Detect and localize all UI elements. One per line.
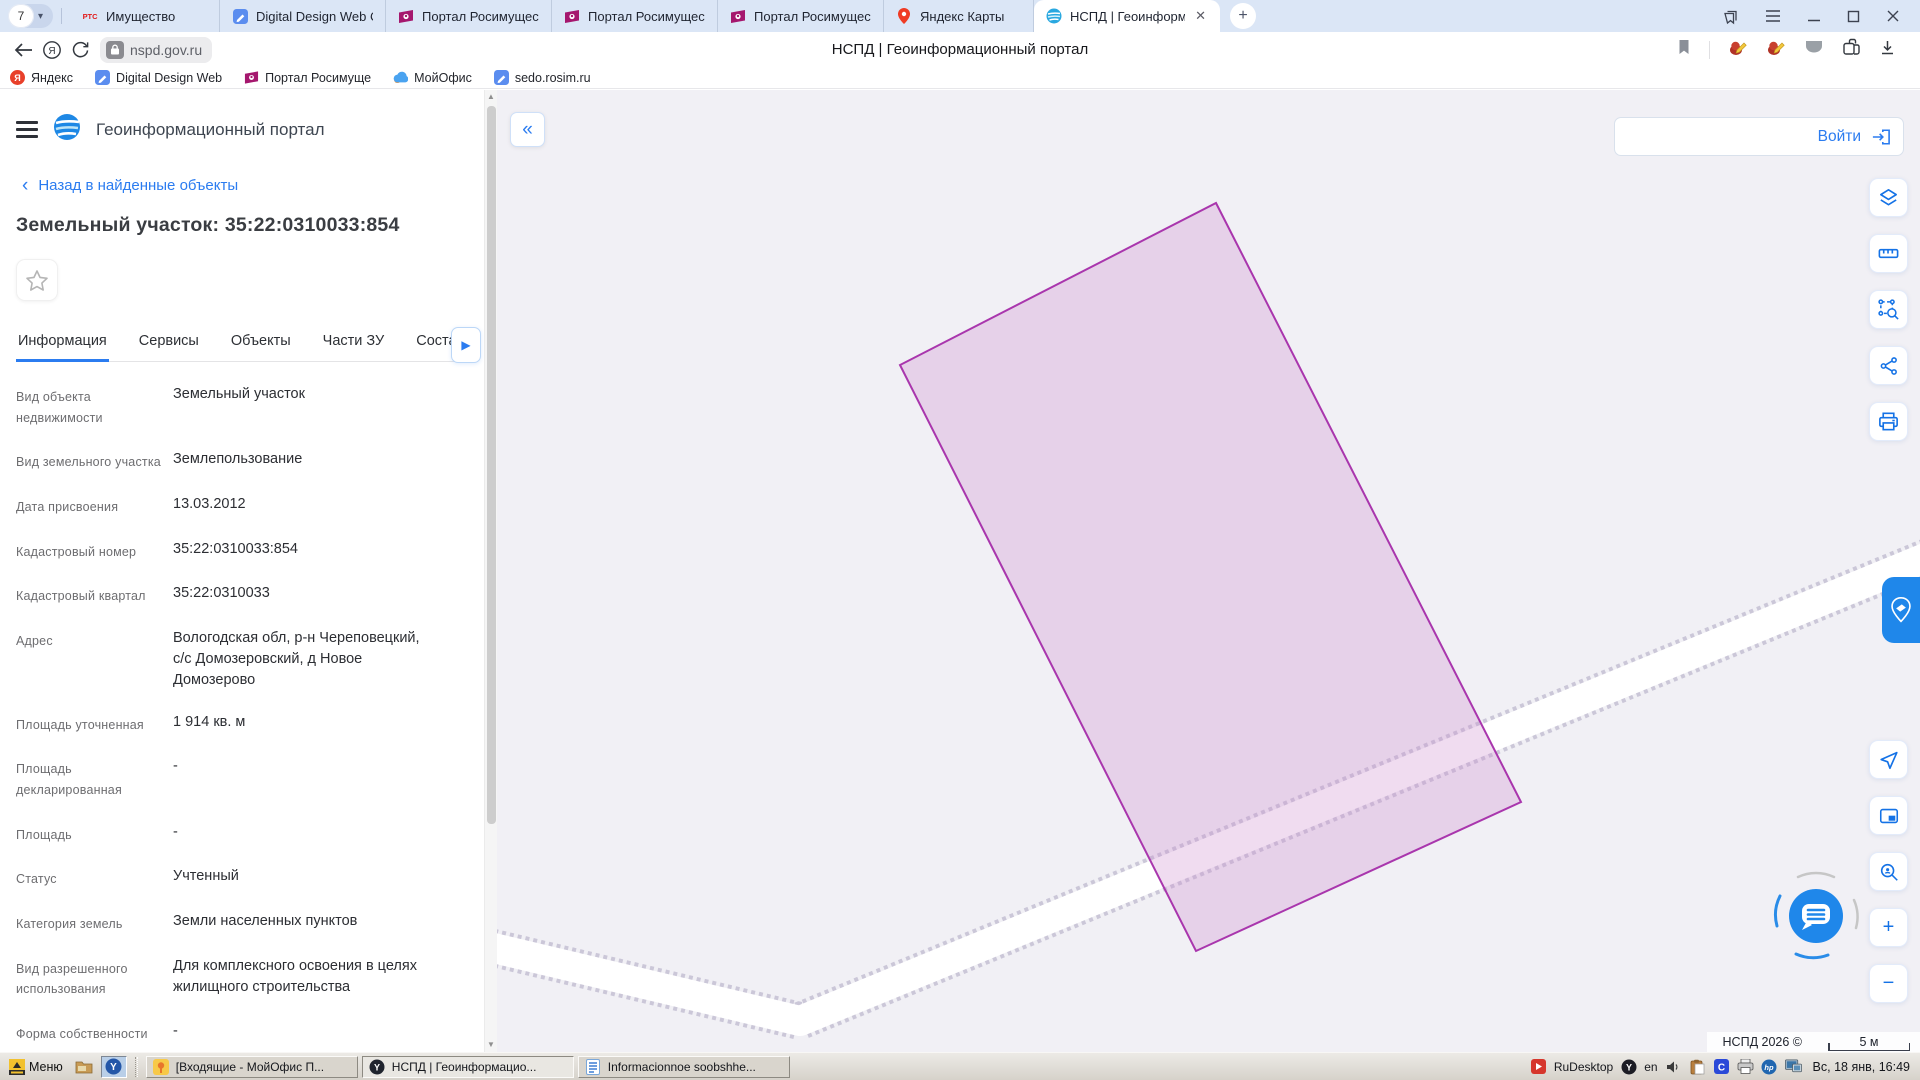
field-value: - (173, 822, 431, 846)
object-info-panel: Геоинформационный портал ‹ Назад в найде… (0, 90, 497, 1052)
bookmark-favicon (244, 70, 259, 85)
map-attribution: НСПД 2026 © 5 м (1707, 1032, 1920, 1052)
bookmarks-bar: Я Яндекс Digital Design Web Портал Росим… (0, 67, 1920, 89)
field-value: Для комплексного освоения в целях жилищн… (173, 956, 431, 1000)
svg-text:Я: Я (14, 73, 20, 83)
tab-favicon (232, 8, 248, 24)
bookmarks-panel-icon[interactable] (1722, 8, 1739, 25)
parcel-polygon[interactable] (900, 203, 1521, 951)
bookmark-item[interactable]: МойОфис (393, 70, 472, 85)
browser-tab[interactable]: Digital Design Web Client ✕ (220, 0, 386, 32)
zoom-in-button[interactable]: + (1869, 908, 1908, 947)
mini-map-button[interactable] (1869, 796, 1908, 835)
field-value: Вологодская обл, р-н Череповецкий, с/с Д… (173, 628, 431, 691)
star-icon (25, 269, 49, 292)
field-label: Кадастровый квартал (16, 583, 173, 607)
start-label: Меню (29, 1060, 63, 1074)
browser-menu-icon[interactable] (1765, 9, 1781, 23)
yandex-tray-icon[interactable]: Y (1620, 1058, 1637, 1075)
taskbar-app-button[interactable]: Informacionnoe soobshhe... (578, 1056, 790, 1078)
tab-counter[interactable]: 7 ▾ (8, 4, 53, 28)
field-label: Форма собственности (16, 1021, 173, 1045)
map-layer (497, 90, 1920, 1052)
maximize-icon[interactable] (1847, 10, 1860, 23)
field-value: - (173, 1021, 431, 1045)
field-row: Категория земель Земли населенных пункто… (16, 911, 467, 935)
browser-window: 7 ▾ РТС Имущество ✕ Digital Design Web C… (0, 0, 1920, 1080)
attribution-text: НСПД 2026 © (1723, 1035, 1802, 1049)
tabs-scroll-right-button[interactable]: ▶ (451, 327, 481, 363)
taskbar-app-button[interactable]: Y НСПД | Геоинформацио... (362, 1056, 574, 1078)
search-on-map-button[interactable] (1869, 852, 1908, 891)
tab-label: Digital Design Web Client (256, 9, 373, 24)
field-row: Кадастровый квартал 35:22:0310033 (16, 583, 467, 607)
login-button[interactable]: Войти (1614, 117, 1904, 156)
window-controls (1722, 8, 1920, 25)
display-tray-icon[interactable] (1785, 1058, 1802, 1075)
tab-favicon (398, 8, 414, 24)
back-link-label: Назад в найденные объекты (38, 177, 238, 194)
bookmark-label: Digital Design Web (116, 71, 222, 85)
field-label: Вид земельного участка (16, 449, 173, 473)
minimize-icon[interactable] (1807, 9, 1821, 23)
refresh-icon[interactable] (66, 36, 94, 64)
login-icon (1871, 128, 1891, 146)
chevron-left-icon: ‹ (22, 179, 28, 193)
bookmark-label: Яндекс (31, 71, 73, 85)
hp-tray-icon[interactable]: hp (1761, 1058, 1778, 1075)
tab-bar: 7 ▾ РТС Имущество ✕ Digital Design Web C… (0, 0, 1920, 32)
field-label: Адрес (16, 628, 173, 691)
portal-header: Геоинформационный портал (16, 112, 467, 147)
bookmark-item[interactable]: sedo.rosim.ru (494, 70, 591, 85)
field-label: Вид объекта недвижимости (16, 384, 173, 428)
start-icon (8, 1058, 25, 1075)
field-value: 1 914 кв. м (173, 712, 431, 736)
collections-icon[interactable] (1842, 38, 1861, 61)
svg-text:Y: Y (1626, 1062, 1632, 1072)
signature-extension-icon[interactable] (1728, 38, 1748, 62)
field-row: Вид объекта недвижимости Земельный участ… (16, 384, 467, 428)
tab-counter-number: 7 (8, 4, 34, 28)
field-value: - (173, 756, 431, 800)
panel-tab[interactable]: Части ЗУ (321, 325, 387, 361)
taskbar-app-icon (153, 1058, 170, 1075)
bookmark-label: МойОфис (414, 71, 472, 85)
object-title: Земельный участок: 35:22:0310033:854 (16, 214, 467, 237)
taskbar-app-icon: Y (369, 1058, 386, 1075)
favorite-star-button[interactable] (16, 259, 58, 301)
back-to-results-link[interactable]: ‹ Назад в найденные объекты (22, 177, 467, 194)
field-row: Вид разрешенного использования Для компл… (16, 956, 467, 1000)
bookmark-flag-icon[interactable] (1677, 39, 1691, 60)
file-manager-button[interactable] (71, 1056, 97, 1078)
scrollbar-thumb[interactable] (487, 106, 496, 824)
map-tools-top (1869, 178, 1908, 441)
object-fields: Вид объекта недвижимости Земельный участ… (16, 384, 467, 1044)
scroll-down-icon[interactable]: ▼ (487, 1038, 495, 1052)
bookmark-item[interactable]: Digital Design Web (95, 70, 222, 85)
map-flyout-handle[interactable] (1882, 577, 1920, 643)
print-button[interactable] (1869, 402, 1908, 441)
divider (1709, 41, 1710, 59)
c-app-tray-icon[interactable]: C (1713, 1058, 1730, 1075)
browser-tab[interactable]: Портал Росимущества ✕ (552, 0, 718, 32)
field-row: Форма собственности - (16, 1021, 467, 1045)
printer-tray-icon[interactable] (1737, 1058, 1754, 1075)
field-value: 13.03.2012 (173, 494, 431, 518)
browser-tab[interactable]: НСПД | Геоинформаци ✕ (1034, 0, 1220, 32)
browser-toolbar: НСПД | Геоинформационный портал Я nspd.g… (0, 32, 1920, 67)
volume-icon[interactable] (1665, 1058, 1682, 1075)
bookmark-label: Портал Росимуще (265, 71, 371, 85)
browser-tab[interactable]: Портал Росимущества ✕ (386, 0, 552, 32)
address-bar[interactable]: nspd.gov.ru (100, 37, 212, 63)
field-row: Площадь уточненная 1 914 кв. м (16, 712, 467, 736)
taskbar-app-label: НСПД | Геоинформацио... (392, 1060, 537, 1074)
bookmark-item[interactable]: Я Яндекс (10, 70, 73, 85)
tab-close-icon[interactable]: ✕ (1193, 8, 1208, 24)
portal-title: Геоинформационный портал (96, 120, 325, 140)
share-button[interactable] (1869, 346, 1908, 385)
field-row: Адрес Вологодская обл, р-н Череповецкий,… (16, 628, 467, 691)
page-content: Геоинформационный портал ‹ Назад в найде… (0, 90, 1920, 1052)
map-canvas[interactable]: « Войти + − (497, 90, 1920, 1052)
keyboard-layout[interactable]: en (1644, 1060, 1657, 1074)
new-tab-button[interactable]: + (1230, 3, 1256, 29)
field-row: Вид земельного участка Землепользование (16, 449, 467, 473)
map-scale: 5 м (1828, 1034, 1910, 1051)
url-text: nspd.gov.ru (130, 42, 202, 58)
taskbar-app-label: Informacionnoe soobshhe... (608, 1060, 756, 1074)
chat-icon (1768, 868, 1864, 964)
page-title: НСПД | Геоинформационный портал (0, 41, 1920, 58)
bookmark-favicon: Я (10, 70, 25, 85)
tab-label: Портал Росимущества (588, 9, 705, 24)
yandex-services-icon[interactable]: Я (38, 36, 66, 64)
tab-favicon (896, 8, 912, 24)
collapse-panel-button[interactable]: « (510, 112, 545, 147)
downloads-icon[interactable] (1879, 39, 1896, 61)
taskbar: Меню Y [Входящие - МойОфис П... Y НСПД |… (0, 1052, 1920, 1080)
taskbar-apps: [Входящие - МойОфис П... Y НСПД | Геоинф… (146, 1056, 790, 1078)
svg-text:Y: Y (374, 1062, 380, 1072)
back-button[interactable] (10, 36, 38, 64)
field-label: Вид разрешенного использования (16, 956, 173, 1000)
bookmark-item[interactable]: Портал Росимуще (244, 70, 371, 85)
field-label: Статус (16, 866, 173, 890)
scroll-up-icon[interactable]: ▲ (487, 90, 495, 104)
browser-tab[interactable]: Портал Росимущества ✕ (718, 0, 884, 32)
taskbar-clock[interactable]: Вс, 18 янв, 16:49 (1813, 1060, 1910, 1074)
svg-text:Я: Я (48, 46, 55, 57)
browser-tab[interactable]: РТС Имущество ✕ (70, 0, 220, 32)
field-value: 35:22:0310033 (173, 583, 431, 607)
panel-tab[interactable]: Информация (16, 325, 109, 362)
bookmark-favicon (393, 70, 408, 85)
panel-tab[interactable]: Сервисы (137, 325, 201, 361)
taskbar-app-button[interactable]: [Входящие - МойОфис П... (146, 1056, 358, 1078)
field-value: Землепользование (173, 449, 431, 473)
my-location-button[interactable] (1869, 740, 1908, 779)
lock-icon[interactable] (106, 41, 124, 59)
field-label: Дата присвоения (16, 494, 173, 518)
field-label: Категория земель (16, 911, 173, 935)
field-row: Площадь - (16, 822, 467, 846)
signature-extension-icon[interactable] (1766, 38, 1786, 62)
browser-tab[interactable]: Яндекс Карты ✕ (884, 0, 1034, 32)
panel-scrollbar[interactable]: ▲ ▼ (484, 90, 497, 1052)
field-label: Площадь декларированная (16, 756, 173, 800)
menu-icon[interactable] (16, 121, 38, 138)
yandex-browser-launcher[interactable]: Y (101, 1056, 127, 1078)
layers-button[interactable] (1869, 178, 1908, 217)
chat-widget-button[interactable] (1768, 868, 1864, 964)
tab-label: НСПД | Геоинформаци (1070, 9, 1185, 24)
rudesktop-label: RuDesktop (1554, 1060, 1613, 1074)
protect-shield-icon[interactable] (1804, 40, 1824, 59)
field-value: Земельный участок (173, 384, 431, 428)
svg-text:Y: Y (110, 1062, 117, 1073)
svg-text:hp: hp (1764, 1063, 1774, 1072)
field-value: Земли населенных пунктов (173, 911, 431, 935)
system-tray: RuDesktop Y en C hp Вс, 18 янв, 16:49 (1530, 1058, 1916, 1075)
divider (61, 8, 62, 24)
taskbar-app-label: [Входящие - МойОфис П... (176, 1060, 324, 1074)
tab-favicon (564, 8, 580, 24)
map-pin-icon (1888, 596, 1914, 624)
field-row: Статус Учтенный (16, 866, 467, 890)
tab-label: Портал Росимущества (422, 9, 539, 24)
login-label: Войти (1818, 128, 1861, 146)
rudesktop-icon[interactable] (1530, 1058, 1547, 1075)
zoom-out-button[interactable]: − (1869, 964, 1908, 1003)
tab-label: Яндекс Карты (920, 9, 1021, 24)
close-window-icon[interactable] (1886, 9, 1900, 23)
field-value: Учтенный (173, 866, 431, 890)
tab-favicon (1046, 8, 1062, 24)
nspd-logo-icon (52, 112, 82, 147)
tab-label: Имущество (106, 9, 207, 24)
bookmark-favicon (494, 70, 509, 85)
panel-tab[interactable]: Объекты (229, 325, 293, 361)
toolbar-right-icons (1677, 38, 1910, 62)
tab-label: Портал Росимущества (754, 9, 871, 24)
taskbar-app-icon (585, 1058, 602, 1075)
field-row: Дата присвоения 13.03.2012 (16, 494, 467, 518)
field-row: Кадастровый номер 35:22:0310033:854 (16, 539, 467, 563)
tab-favicon: РТС (82, 8, 98, 24)
start-menu-button[interactable]: Меню (4, 1057, 67, 1076)
tab-favicon (730, 8, 746, 24)
bookmark-label: sedo.rosim.ru (515, 71, 591, 85)
svg-text:C: C (1717, 1063, 1724, 1074)
ruler-button[interactable] (1869, 234, 1908, 273)
field-row: Площадь декларированная - (16, 756, 467, 800)
chevron-down-icon: ▾ (34, 11, 47, 22)
area-search-button[interactable] (1869, 290, 1908, 329)
field-value: 35:22:0310033:854 (173, 539, 431, 563)
taskbar-separator (135, 1057, 138, 1077)
field-label: Кадастровый номер (16, 539, 173, 563)
clipboard-tray-icon[interactable] (1689, 1058, 1706, 1075)
tabs-list: РТС Имущество ✕ Digital Design Web Clien… (70, 0, 1220, 32)
panel-tabs: ИнформацияСервисыОбъектыЧасти ЗУСоста▶ (16, 325, 467, 362)
field-label: Площадь (16, 822, 173, 846)
map-tools-bottom: + − (1869, 740, 1908, 1003)
bookmark-favicon (95, 70, 110, 85)
field-label: Площадь уточненная (16, 712, 173, 736)
